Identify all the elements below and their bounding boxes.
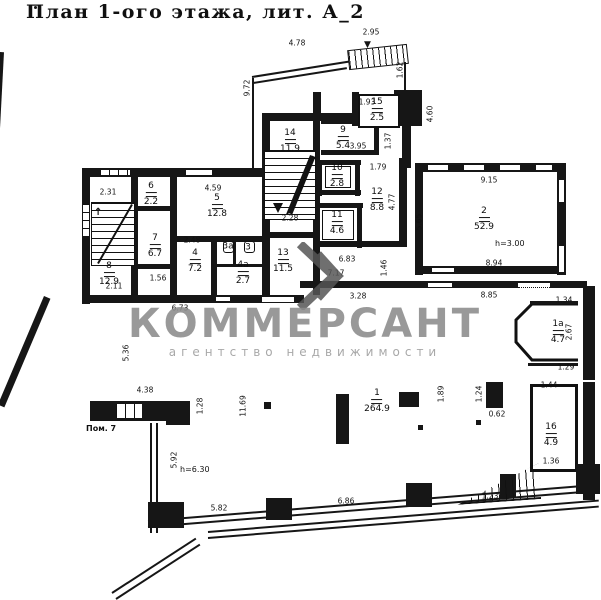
room-area: 5.4 (336, 143, 350, 152)
room-area: 7.2 (188, 266, 202, 275)
dimension-label: 1.79 (370, 163, 387, 171)
dimension-label: 8.85 (481, 291, 498, 299)
note-pom-7: Пом. 7 (86, 424, 116, 433)
door-gap (432, 268, 454, 272)
dimension-label: 2.48 (184, 236, 201, 244)
room-number: 5 (207, 194, 227, 203)
dimension-label: 0.62 (489, 410, 506, 418)
page-title: План 1-ого этажа, лит. А_2 (26, 1, 365, 23)
room-number: 3а (222, 242, 233, 251)
door-gap (428, 283, 452, 287)
room-number: 2 (474, 207, 494, 216)
dimension-label: 4.78 (289, 39, 306, 47)
column (486, 382, 503, 408)
dimension-label: 8.94 (486, 259, 503, 267)
dimension-label: 1.36 (543, 457, 560, 465)
room-1-label: 1264.9 (364, 389, 390, 415)
room-9-label: 95.4 (336, 126, 350, 152)
dimension-label: 1.44 (541, 381, 558, 389)
room-number: 1 (364, 389, 390, 398)
dimension-label: 4.59 (205, 184, 222, 192)
wall-segment (82, 168, 90, 304)
scan-artifact (0, 52, 4, 144)
dimension-label: 6.86 (338, 497, 355, 505)
room-number: 8 (99, 262, 119, 271)
stairs-left-stairwell: ↑ (91, 202, 135, 266)
room-6-label: 62.2 (144, 182, 158, 208)
wall-segment (315, 203, 363, 208)
room-area: 12.8 (207, 211, 227, 220)
plan-line (0, 296, 50, 407)
column (476, 420, 481, 425)
room-area: 4.7 (551, 337, 565, 346)
plan-line (404, 62, 406, 92)
room-number: 4 (188, 249, 202, 258)
room-number: 10 (330, 164, 344, 173)
column (576, 464, 600, 494)
stair-down-arrow-icon (273, 203, 283, 213)
dimension-label: 2.31 (100, 188, 117, 196)
window-gap (116, 404, 142, 418)
column (399, 392, 419, 407)
room-area: 8.8 (370, 205, 384, 214)
plan-line (115, 544, 200, 600)
column (336, 394, 349, 444)
wall-segment (262, 232, 320, 238)
room-3а-label: 3а (222, 242, 233, 251)
window-gap (83, 204, 89, 236)
room-area: 4.6 (330, 228, 344, 237)
wall-segment (317, 190, 361, 195)
room-number: 4а (236, 261, 250, 270)
dimension-label: 1.37 (384, 133, 392, 150)
stair-down-arrow-icon: ▼ (364, 40, 371, 50)
dimension-label: 5.65 (415, 214, 423, 231)
dimension-label: 1.34 (556, 296, 573, 304)
dimension-label: 11.69 (239, 395, 247, 416)
dimension-label: 4.38 (137, 386, 154, 394)
dimension-label: 2.67 (565, 324, 573, 341)
wall-segment (166, 401, 190, 425)
room-number: 16 (544, 423, 558, 432)
room-area: 4.9 (544, 440, 558, 449)
room-number: 11 (330, 211, 344, 220)
room-12-label: 128.8 (370, 188, 384, 214)
door-gap (559, 246, 564, 272)
stairs-tower (264, 150, 316, 220)
room-area: 2.7 (236, 278, 250, 287)
plan-line (111, 538, 196, 594)
room-number: 3 (245, 243, 251, 252)
dimension-label: 1.46 (380, 260, 388, 277)
room-number: 9 (336, 126, 350, 135)
dimension-label: 1.23 (482, 492, 499, 500)
dimension-label: 3.95 (350, 142, 367, 150)
kommersant-chevron-k-logo-icon (286, 242, 362, 310)
room-area: 2.2 (144, 199, 158, 208)
room-area: 2.5 (370, 115, 384, 124)
dimension-label: 1.29 (558, 363, 575, 371)
door-gap (428, 165, 448, 170)
stair-up-arrow-icon: ↑ (94, 207, 102, 218)
watermark-agency-name: КОММЕРСАНТ (105, 301, 505, 347)
dimension-label: 9.15 (481, 176, 498, 184)
dimension-label: 1.93 (359, 98, 376, 106)
dimension-label: 2.11 (106, 282, 123, 290)
door-gap (536, 165, 552, 170)
room-1a-bay-outline (508, 296, 588, 368)
stair-diagonal-wedge (289, 156, 316, 215)
room-area: 52.9 (474, 224, 494, 233)
room-area: 264.9 (364, 406, 390, 415)
dimension-label: 1.24 (475, 386, 483, 403)
scan-artifact (34, 6, 37, 9)
room-4-label: 47.2 (188, 249, 202, 275)
room-area: 6.7 (148, 251, 162, 260)
dimension-label: 1.62 (396, 62, 404, 79)
dimension-label: 5.82 (211, 504, 228, 512)
room-10-label: 102.8 (330, 164, 344, 190)
room-3-label: 3 (245, 243, 251, 252)
note-height-room2: h=3.00 (495, 239, 525, 248)
column (266, 498, 292, 520)
wall-segment (211, 240, 217, 302)
wall-segment (399, 158, 407, 247)
column (418, 425, 423, 430)
plan-line (252, 78, 254, 170)
door-gap (500, 165, 520, 170)
room-5-label: 512.8 (207, 194, 227, 220)
room-2-label: 252.9 (474, 207, 494, 233)
room-area: 2.8 (330, 181, 344, 190)
dimension-label: 9.72 (243, 80, 251, 97)
room-4а-label: 4а2.7 (236, 261, 250, 287)
watermark-tagline: агентство недвижимости (105, 345, 505, 359)
dimension-label: 1.28 (196, 398, 204, 415)
dimension-label: 5.92 (170, 452, 178, 469)
column (406, 483, 432, 507)
room-1а-label: 1а4.7 (551, 320, 565, 346)
dimension-label: 1.89 (437, 386, 445, 403)
room-7-label: 76.7 (148, 234, 162, 260)
column (148, 502, 184, 528)
dimension-label: 2.95 (363, 28, 380, 36)
room-number: 7 (148, 234, 162, 243)
room-16-label: 164.9 (544, 423, 558, 449)
door-gap (559, 180, 564, 202)
room-14-label: 1411.9 (280, 129, 300, 155)
column (264, 402, 271, 409)
door-gap (464, 165, 484, 170)
dimension-label: 2.28 (282, 214, 299, 222)
room-number: 1а (551, 320, 565, 329)
dimension-label: 1.56 (150, 274, 167, 282)
window-gap (518, 283, 550, 288)
note-height-hall: h=6.30 (180, 465, 210, 474)
window-gap (100, 170, 130, 175)
room-number: 14 (280, 129, 300, 138)
door-gap (186, 170, 212, 175)
dimension-label: 4.60 (426, 106, 434, 123)
stair-diagonal (97, 204, 133, 264)
room-number: 12 (370, 188, 384, 197)
wall-segment (131, 264, 177, 269)
room-11-label: 114.6 (330, 211, 344, 237)
floor-plan: План 1-ого этажа, лит. А_2 ↑ ▼ Пом. 7 h=… (0, 0, 601, 600)
room-number: 6 (144, 182, 158, 191)
dimension-label: 4.77 (388, 194, 396, 211)
room-area: 11.9 (280, 146, 300, 155)
